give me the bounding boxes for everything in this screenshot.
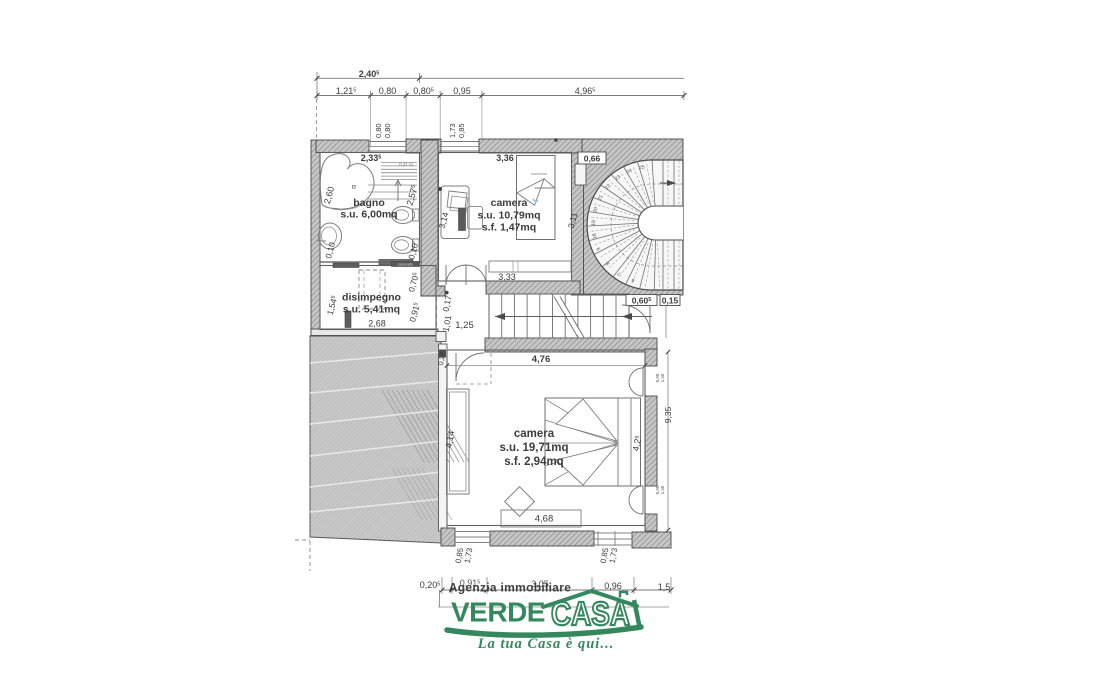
- svg-text:Agenzia immobiliare: Agenzia immobiliare: [449, 581, 571, 595]
- svg-text:1,5: 1,5: [658, 582, 671, 592]
- svg-text:disimpegno: disimpegno: [342, 292, 401, 304]
- svg-text:3,33: 3,33: [498, 272, 516, 282]
- svg-text:0,205: 0,205: [420, 580, 441, 590]
- svg-text:camera: camera: [514, 428, 555, 440]
- svg-text:3,36: 3,36: [496, 153, 514, 163]
- svg-text:s.f. 1,47mq: s.f. 1,47mq: [482, 222, 536, 234]
- svg-text:0,15: 0,15: [662, 296, 679, 306]
- svg-text:4,68: 4,68: [535, 514, 554, 525]
- svg-text:1,45: 1,45: [660, 485, 665, 494]
- svg-text:s.u. 5,41mq: s.u. 5,41mq: [343, 304, 400, 316]
- svg-text:19: 19: [591, 220, 597, 226]
- svg-text:0,85: 0,85: [457, 123, 466, 138]
- svg-text:bagno: bagno: [353, 197, 385, 209]
- svg-text:2,68: 2,68: [368, 319, 386, 329]
- svg-text:0,96: 0,96: [604, 581, 622, 591]
- svg-text:camera: camera: [491, 197, 528, 209]
- svg-text:1,45: 1,45: [660, 373, 665, 382]
- svg-text:La tua Casa è qui...: La tua Casa è qui...: [477, 636, 614, 652]
- svg-text:4,76: 4,76: [532, 354, 551, 365]
- svg-text:1,215: 1,215: [336, 86, 357, 96]
- svg-text:2,405: 2,405: [359, 69, 380, 79]
- svg-text:s.u. 10,79mq: s.u. 10,79mq: [477, 210, 540, 222]
- svg-text:0,95: 0,95: [453, 86, 471, 96]
- svg-text:4,965: 4,965: [575, 86, 596, 96]
- svg-text:1,25: 1,25: [455, 320, 474, 331]
- svg-text:0,80: 0,80: [374, 123, 383, 138]
- svg-text:1,73: 1,73: [448, 123, 457, 138]
- svg-text:s.u. 6,00mq: s.u. 6,00mq: [340, 209, 397, 221]
- svg-text:2,335: 2,335: [361, 153, 382, 163]
- svg-text:s.f. 2,94mq: s.f. 2,94mq: [504, 456, 563, 468]
- svg-text:0,80: 0,80: [379, 86, 397, 96]
- svg-text:s.u. 19,71mq: s.u. 19,71mq: [499, 442, 568, 454]
- svg-text:cassonetto: cassonetto: [398, 263, 414, 267]
- svg-text:0,41 m: 0,41 m: [399, 162, 413, 167]
- svg-text:9,35: 9,35: [663, 406, 673, 423]
- svg-text:0,805: 0,805: [413, 86, 434, 96]
- svg-text:0,66: 0,66: [584, 154, 601, 164]
- svg-text:VERDE: VERDE: [451, 597, 545, 628]
- svg-text:0,80: 0,80: [383, 123, 392, 138]
